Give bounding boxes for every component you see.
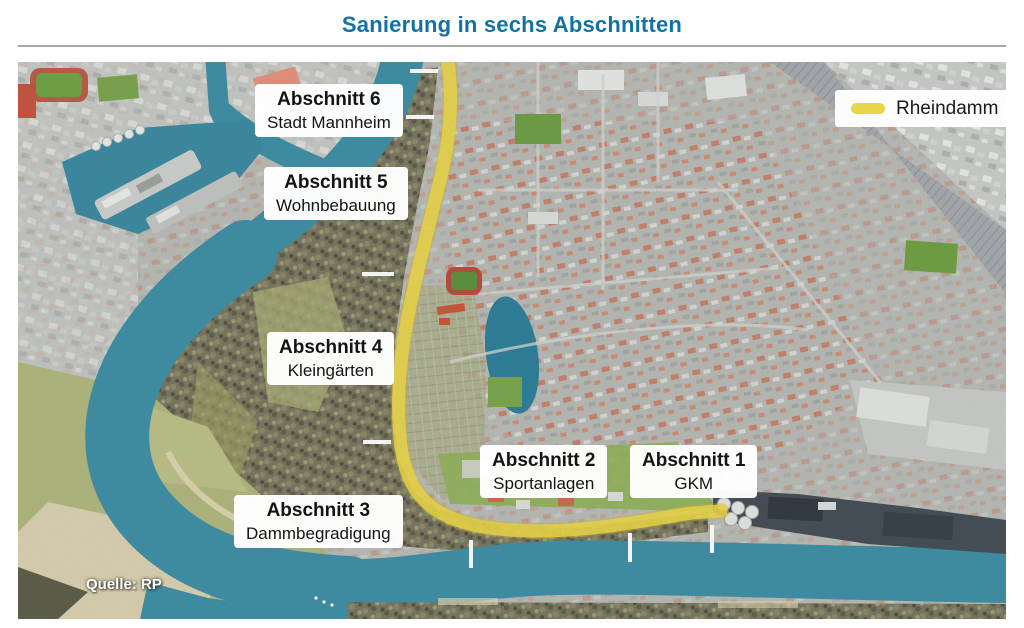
label-abschnitt-4: Abschnitt 4 Kleingärten — [267, 332, 394, 385]
label-abschnitt-5: Abschnitt 5 Wohnbebauung — [264, 167, 408, 220]
label-abschnitt-2: Abschnitt 2 Sportanlagen — [480, 445, 607, 498]
photo-grain — [18, 62, 1006, 619]
section-subtitle: Kleingärten — [279, 360, 382, 381]
title-divider — [18, 45, 1006, 47]
section-title: Abschnitt 4 — [279, 336, 382, 360]
infographic-page: Sanierung in sechs Abschnitten — [0, 0, 1024, 628]
aerial-map-image — [18, 62, 1006, 619]
section-subtitle: Dammbegradigung — [246, 523, 391, 544]
section-title: Abschnitt 6 — [267, 88, 391, 112]
section-subtitle: Wohnbebauung — [276, 195, 396, 216]
label-abschnitt-1: Abschnitt 1 GKM — [630, 445, 757, 498]
aerial-map: Abschnitt 6 Stadt Mannheim Abschnitt 5 W… — [18, 62, 1006, 619]
section-subtitle: Stadt Mannheim — [267, 112, 391, 133]
legend-label: Rheindamm — [896, 98, 998, 120]
page-title: Sanierung in sechs Abschnitten — [0, 12, 1024, 38]
section-subtitle: Sportanlagen — [492, 473, 595, 494]
rheindamm-swatch-icon — [851, 103, 885, 114]
map-legend: Rheindamm — [835, 90, 1006, 127]
section-title: Abschnitt 1 — [642, 449, 745, 473]
section-title: Abschnitt 3 — [246, 499, 391, 523]
label-abschnitt-6: Abschnitt 6 Stadt Mannheim — [255, 84, 403, 137]
section-title: Abschnitt 5 — [276, 171, 396, 195]
source-credit: Quelle: RP — [86, 576, 162, 593]
section-title: Abschnitt 2 — [492, 449, 595, 473]
label-abschnitt-3: Abschnitt 3 Dammbegradigung — [234, 495, 403, 548]
section-subtitle: GKM — [642, 473, 745, 494]
